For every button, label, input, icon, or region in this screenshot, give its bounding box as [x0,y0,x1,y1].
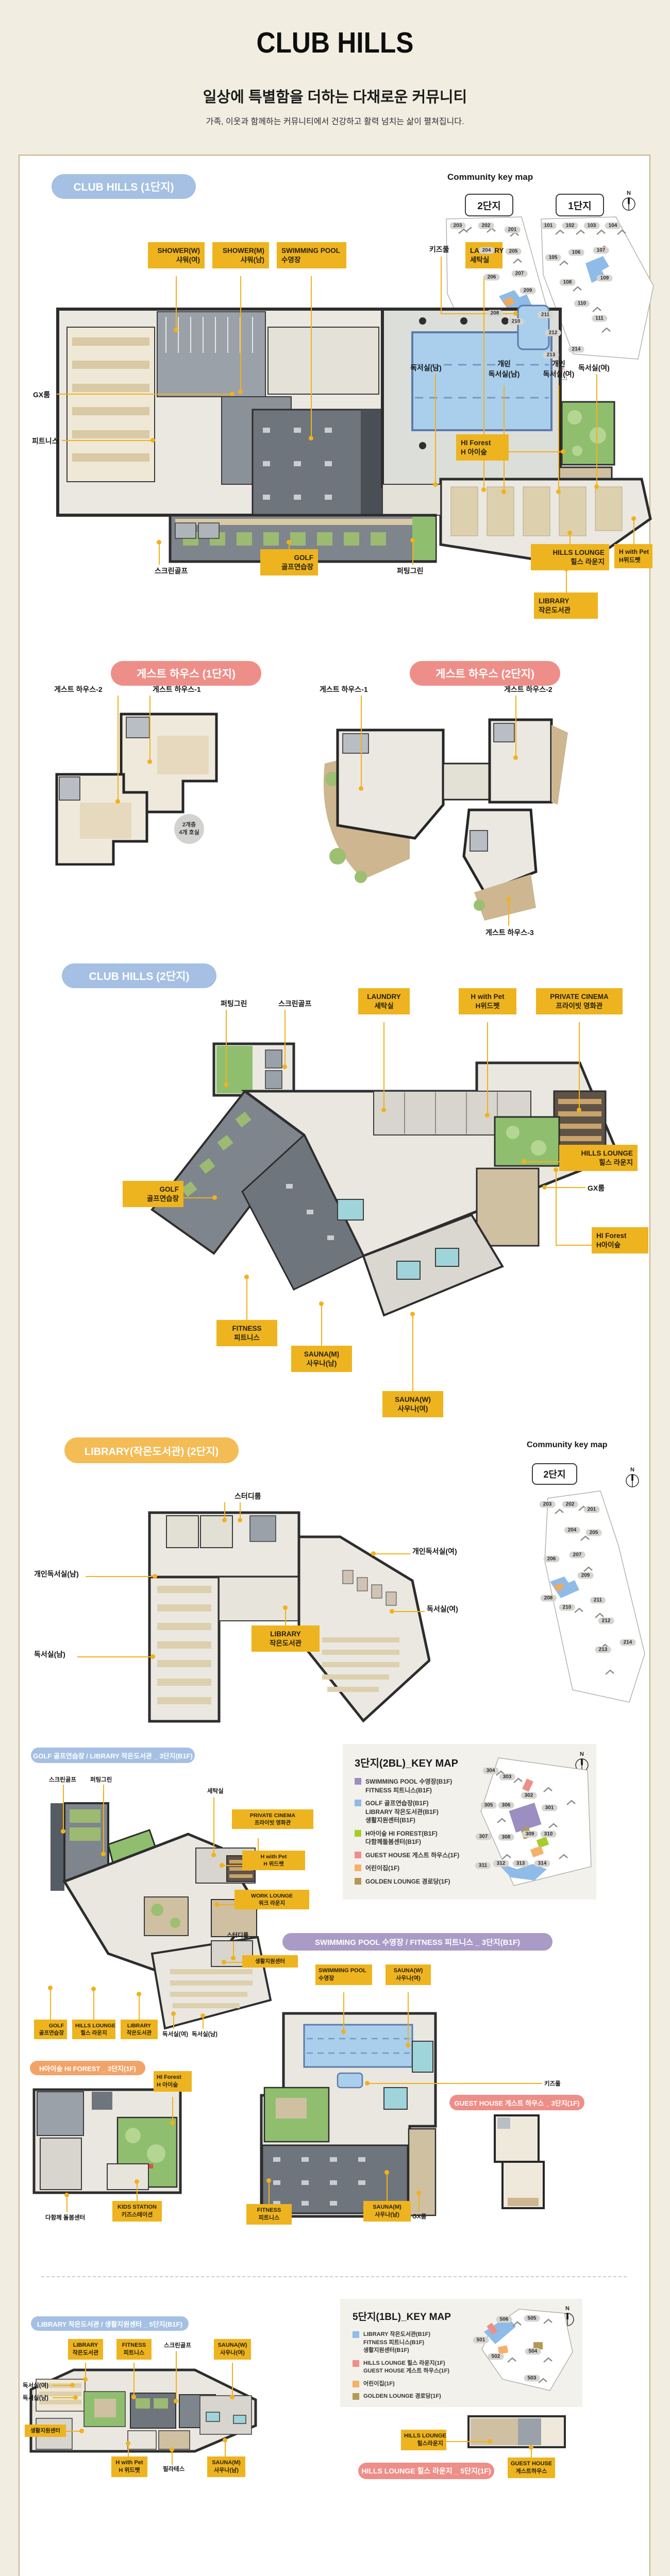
label-reading-m5: 독서실(남) [23,2394,48,2402]
leader-dot [410,538,415,543]
label-private-reading-w2: 개인독서실(여) [412,1546,457,1556]
building-pill-313: 313 [513,1860,529,1867]
label-h-with-pet5: H with PetH 위드펫 [111,2456,147,2477]
guest-note-circle: 2개층4개 호실 [174,814,204,844]
leader-line [222,1865,242,1866]
label-sauna-m3: SAUNA(M)사우나(남) [363,2201,411,2222]
label-study-room: 스터디룸 [234,1491,261,1501]
guest-house-plan-3danji [487,2111,549,2212]
building-pill-314: 314 [534,1860,550,1867]
leader-line [149,696,150,761]
leader-dot [371,1551,376,1556]
label-hi-forest: HI ForestH 아이숲 [456,434,509,461]
leader-line [240,1502,241,1520]
leader-line [412,1314,413,1391]
leader-dot [542,1185,547,1190]
leader-dot [238,389,243,394]
building-pill-207: 207 [512,270,528,277]
building-pill-505: 505 [524,2315,540,2322]
floor-plan-library2 [121,1509,430,1725]
leader-dot [359,786,363,791]
leader-dot [384,2170,389,2175]
keymap5-title: 5단지(1BL)_KEY MAP [353,2309,451,2323]
leader-dot [406,2043,410,2047]
leader-dot [153,1574,157,1579]
leader-line [93,1989,94,2020]
leader-line [633,518,634,544]
leader-dot [266,2178,271,2183]
leader-dot [222,1960,226,1964]
legend-chip [353,2331,359,2338]
leader-line [524,1161,559,1162]
label-guest2-2: 게스트 하우스-2 [504,684,552,694]
leader-line [321,1303,322,1346]
leader-line [172,2097,173,2123]
building-pill-101: 101 [541,223,557,229]
label-library3: LIBRARY작은도서관 [121,2020,158,2039]
building-pill-205: 205 [586,1530,602,1536]
building-pill-108: 108 [560,279,576,286]
section5-badge: GOLF 골프연습장 / LIBRARY 작은도서관 _ 3단지(B1F) [31,1748,195,1763]
building-pill-212: 212 [545,330,561,336]
label-golf3: GOLF골프연습장 [34,2020,67,2039]
leader-line [408,1992,409,2045]
leader-line [504,385,505,492]
section6-badge: SWIMMING POOL 수영장 / FITNESS 피트니스 _ 3단지(B… [282,1933,552,1951]
label-fitness2: FITNESS피트니스 [216,1320,277,1346]
label-library: LIBRARY작은도서관 [534,592,598,619]
legend-chip [355,1778,361,1785]
leader-dot [522,1159,526,1164]
leader-line [63,1785,64,1831]
building-pill-210: 210 [508,318,524,325]
label-library2: LIBRARY작은도서관 [252,1625,320,1652]
legend-chip [355,1865,361,1871]
leader-line [441,313,515,314]
label-guest2-3: 게스트 하우스-3 [485,927,534,938]
leader-line [392,1611,425,1612]
leader-dot [212,1195,217,1200]
keymap2-title: Community key map [527,1440,607,1450]
building-pill-106: 106 [568,249,584,256]
building-pill-213: 213 [595,1647,611,1653]
leader-line [509,451,563,452]
label-golf: GOLF골프연습장 [260,549,318,575]
legend-chip [353,2381,359,2387]
building-pill-502: 502 [488,2353,504,2360]
label-work-lounge: WORK LOUNGE워크 라운지 [234,1890,309,1909]
label-pilates5: 필라테스 [163,2465,185,2473]
building-pill-304: 304 [483,1768,499,1774]
keymap1-title: Community key map [447,172,533,182]
leader-line [224,1962,242,1963]
label-screen-golf3: 스크린골프 [49,1775,76,1784]
building-pill-504: 504 [525,2348,541,2355]
page-description: 가족, 이웃과 함께하는 커뮤니티에서 건강하고 활력 넘치는 삶이 펼쳐집니다… [0,114,670,127]
label-study3: 스터디룸 [227,1931,248,1939]
building-pill-110: 110 [574,300,590,307]
building-pill-305: 305 [481,1802,497,1809]
leader-dot [70,2383,75,2387]
leader-line [418,2193,420,2211]
building-pill-201: 201 [505,227,521,233]
building-pill-204: 204 [564,1527,580,1534]
leader-dot [513,311,518,316]
leader-dot [506,897,511,902]
building-pill-109: 109 [597,275,613,282]
leader-line [285,1607,286,1625]
building-pill-208: 208 [541,1595,557,1602]
leader-line [441,257,442,313]
floor-plan-hiforest3 [30,2087,185,2196]
leader-dot [410,1312,415,1316]
label-sauna-w5: SAUNA(W)사우나(여) [214,2339,251,2360]
building-pill-303: 303 [499,1774,515,1781]
leader-line [224,1502,225,1520]
leader-line [269,2180,270,2204]
label-kids-pool: 키즈풀 [429,244,449,255]
label-hiforest3: HI ForestH 아이숲 [154,2071,192,2092]
label-support3: 생활지원센터 [242,1955,298,1968]
building-pill-506: 506 [496,2316,512,2323]
leader-line [53,2385,72,2386]
building-pill-208: 208 [487,310,503,317]
building-pill-205: 205 [506,248,522,255]
leader-dot [529,2445,533,2450]
leader-dot [341,2029,346,2034]
label-golf2: GOLF골프연습장 [123,1181,183,1207]
leader-dot [501,489,506,494]
building-pill-211: 211 [590,1597,606,1604]
svg-text:N: N [630,1467,634,1473]
building-pill-206: 206 [544,1556,560,1563]
leader-dot [594,484,599,489]
leader-dot [214,1902,219,1907]
legend-chip [355,1830,361,1837]
leader-dot [556,489,561,494]
section2-badge-1danji: 게스트 하우스 (1단지) [111,661,261,686]
label-swimming-pool: SWIMMING POOL수영장 [277,242,346,268]
leader-line [159,542,160,565]
leader-dot [101,1852,106,1856]
label-reading-m3: 독서실(남) [192,2030,217,2038]
leader-line [118,696,119,801]
leader-line [246,1277,247,1320]
leader-dot [115,799,120,804]
label-sauna-w2: SAUNA(W)사우나(여) [382,1391,443,1417]
leader-dot [150,438,155,443]
leader-dot [481,487,486,492]
building-pill-102: 102 [562,223,578,229]
section8-badge: GUEST HOUSE 게스트 하우스 _ 3단지(1F) [449,2095,584,2110]
brochure-page: CLUB HILLS 일상에 특별함을 더하는 다채로운 커뮤니티 가족, 이웃… [0,0,670,2576]
leader-dot [79,2429,84,2433]
leader-line [596,374,597,486]
section9-badge: LIBRARY 작은도서관 / 생활지원센터 _ 5단지(B1F) [31,2316,189,2331]
leader-line [57,394,232,395]
leader-dot [126,2441,130,2446]
building-pill-201: 201 [584,1506,600,1513]
label-h-with-pet2: H with PetH위드펫 [459,988,516,1014]
leader-line [556,1170,557,1246]
leader-line [137,2181,138,2201]
leader-dot [157,540,161,545]
building-pill-308: 308 [498,1834,514,1841]
building-pill-210: 210 [559,1604,575,1611]
label-fitness5: FITNESS피트니스 [116,2339,152,2360]
label-sauna-m2: SAUNA(M)사우나(남) [291,1346,352,1372]
label-kids-pool3: 키즈풀 [544,2079,561,2088]
building-pill-104: 104 [605,223,621,229]
leader-dot [488,2439,492,2444]
floor-plan-hills-lounge5 [466,2414,567,2449]
label-hills3: HILLS LOUNGE힐스 라운지 [72,2020,115,2039]
leader-dot [91,1987,96,1991]
leader-dot [319,1301,324,1306]
label-private-reading-m: 개인독서실(남) [484,359,524,379]
label-guest-1: 게스트 하우스-1 [153,684,201,694]
section-divider [41,2276,627,2277]
label-putting-green2: 퍼팅그린 [221,998,247,1009]
building-pill-501: 501 [473,2337,489,2344]
leader-dot [631,516,636,521]
leader-dot [244,1275,249,1279]
label-screen-golf: 스크린골프 [155,566,188,576]
building-pill-302: 302 [521,1792,537,1799]
compass-icon: N [621,190,636,213]
leader-dot [64,2193,69,2197]
label-private-reading-w: 개인독서실(여) [539,359,578,379]
leader-line [139,1994,140,2020]
label-screen-golf5: 스크린골프 [164,2341,191,2349]
leader-dot [224,1082,228,1087]
building-pill-206: 206 [484,274,500,281]
leader-dot [238,1518,242,1522]
leader-dot [174,2399,178,2403]
keymap3-legend: SWIMMING POOL 수영장(B1F)FITNESS 피트니스(B1F) … [355,1777,473,1890]
leader-line [213,1797,214,1855]
leader-line [216,1904,234,1905]
floor-plan-complex1 [52,281,652,572]
label-hills-lounge: HILLS LOUNGE힐스 라운지 [531,544,609,570]
leader-dot [170,2121,175,2125]
leader-dot [567,531,572,535]
leader-line [176,2351,177,2401]
leader-dot [48,1986,53,1990]
section1-badge: CLUB HILLS (1단지) [52,174,196,199]
leader-dot [283,1605,288,1610]
label-gx3: GX룸 [412,2212,426,2221]
keymap1-badge-2danji: 2단지 [465,194,513,216]
label-reading-w5: 독서실(여) [23,2381,48,2389]
leader-dot [230,2395,234,2399]
leader-dot [282,1064,287,1069]
leader-line [311,276,312,438]
leader-line [53,2397,75,2398]
label-shower-m: SHOWER(M)샤워(남) [212,242,269,268]
leader-dot [61,1829,65,1834]
legend-chip [355,1800,361,1806]
label-guest-house5: GUEST HOUSE게스트하우스 [508,2458,555,2478]
leader-dot [381,1108,386,1112]
leader-line [558,385,559,492]
leader-dot [554,1167,558,1172]
guest-house-plan-1danji [49,705,227,866]
leader-dot [147,759,152,764]
building-pill-311: 311 [475,1862,491,1869]
label-reading-w: 독서실(여) [578,363,610,373]
section10-badge: HILLS LOUNGE 힐스 라운지 _ 5단지(1F) [358,2463,494,2479]
leader-dot [137,1992,141,1996]
building-pill-214: 214 [568,346,584,353]
leader-line [133,2363,135,2397]
leader-dot [171,2011,176,2016]
label-reading-m2: 독서실(남) [34,1649,65,1659]
label-private-reading-m2: 개인독서실(남) [34,1569,79,1579]
leader-dot [131,2395,136,2399]
leader-line [515,696,516,757]
label-gx-room2: GX룸 [588,1183,605,1193]
leader-dot [365,2081,370,2086]
building-pill-309: 309 [522,1831,538,1838]
leader-line [579,1022,580,1110]
leader-line [373,1553,410,1554]
leader-line [435,374,436,484]
leader-dot [577,1108,581,1112]
label-private-cinema: PRIVATE CINEMA프라이빗 영화관 [536,988,623,1014]
keymap2-badge: 2단지 [532,1463,577,1485]
building-pill-202: 202 [562,1501,578,1508]
building-pill-310: 310 [541,1831,557,1838]
label-hills-lounge2: HILLS LOUNGE힐스 라운지 [559,1145,638,1171]
label-hills-lounge5: HILLS LOUNGE힐스라운지 [401,2430,446,2450]
building-pill-204: 204 [479,247,495,254]
leader-line [183,1197,214,1198]
section3-badge: CLUB HILLS (2단지) [62,963,216,988]
keymap5-legend: LIBRARY 작은도서관(B1F)FITNESS 피트니스(B1F)생활지원센… [353,2331,463,2405]
leader-line [556,1245,592,1246]
keymap1-badge-1danji: 1단지 [556,194,604,216]
leader-line [387,2172,388,2201]
building-pill-503: 503 [524,2375,540,2382]
leader-line [232,2363,233,2397]
label-library5: LIBRARY작은도서관 [68,2339,103,2360]
leader-dot [561,449,565,454]
label-laundry: LAUNDRY세탁실 [465,242,502,268]
building-pill-307: 307 [476,1834,492,1840]
building-pill-213: 213 [543,352,559,359]
leader-line [383,1022,384,1110]
legend-chip [355,1852,361,1858]
label-guest2-1: 게스트 하우스-1 [320,684,368,694]
leader-line [508,899,509,926]
leader-dot [211,1853,216,1857]
label-support5: 생활지원센터 [25,2425,66,2437]
leader-dot [230,392,234,396]
leader-dot [309,436,313,440]
label-guest-2: 게스트 하우스-2 [54,684,103,694]
leader-dot [222,1518,227,1522]
building-pill-103: 103 [584,223,600,229]
floor-plan-complex2 [116,1040,616,1349]
label-shower-w: SHOWER(W)샤워(여) [148,242,205,268]
building-pill-212: 212 [598,1618,614,1624]
leader-line [367,2083,542,2084]
leader-dot [564,567,568,571]
svg-text:N: N [627,190,631,196]
label-laundry3: 세탁실 [207,1787,224,1795]
building-pill-214: 214 [620,1639,636,1646]
building-pill-209: 209 [578,1572,594,1579]
label-fitness: 피트니스 [32,436,59,446]
leader-dot [170,2447,174,2452]
leader-line [176,276,177,330]
keymap3-title: 3단지(2BL)_KEY MAP [355,1755,458,1770]
leader-dot [231,1956,236,1960]
legend-chip [353,2360,359,2367]
legend-chip [355,1878,361,1885]
label-reading-w3: 독서실(여) [162,2030,188,2038]
leader-line [50,1988,51,2020]
leader-line [412,540,413,565]
leader-line [284,1010,286,1066]
label-sauna-m5: SAUNA(M)사우나(남) [207,2456,245,2477]
leader-line [66,2195,68,2212]
label-hi-forest2: HI ForestH아이숲 [592,1227,648,1253]
building-pill-207: 207 [569,1552,585,1558]
leader-dot [416,2191,421,2195]
label-reading-w2: 독서실(여) [427,1604,458,1614]
label-pool3: SWIMMING POOL수영장 [315,1964,372,1985]
leader-dot [83,2377,88,2382]
page-subtitle: 일상에 특별함을 더하는 다채로운 커뮤니티 [0,85,670,107]
leader-dot [485,1113,490,1117]
section2-badge-2danji: 게스트 하우스 (2단지) [410,661,560,686]
leader-line [487,1022,488,1115]
leader-line [343,1992,344,2031]
label-laundry2: LAUNDRY세탁실 [358,988,410,1014]
leader-dot [73,2395,78,2400]
label-kids-station: KIDS STATION키즈스테이션 [112,2201,162,2222]
page-title: CLUB HILLS [33,26,636,60]
label-gx-room: GX룸 [33,389,50,400]
leader-dot [287,540,291,545]
building-pill-105: 105 [545,255,561,261]
building-pill-202: 202 [478,223,494,229]
guest-house-plan-2danji [314,702,569,926]
label-care-center: 다함께 돌봄센터 [45,2213,85,2222]
label-cinema3: PRIVATE CINEMA프라이빗 영화관 [232,1809,313,1829]
leader-dot [150,1654,155,1659]
section7-badge: H아이숲 HI FOREST _ 3단지(1F) [30,2061,145,2075]
leader-line [86,1576,155,1577]
leader-dot [223,2438,227,2443]
label-putting3: 퍼팅그린 [90,1775,112,1784]
leader-line [446,2441,490,2442]
building-pill-211: 211 [538,312,553,318]
leader-line [566,569,567,592]
building-pill-111: 111 [592,315,607,322]
label-h-with-pet3: H with PetH 위드펫 [242,1851,305,1870]
leader-dot [135,2179,139,2184]
label-putting-green: 퍼팅그린 [397,566,424,576]
leader-dot [174,328,178,332]
leader-line [240,276,241,392]
leader-line [103,1785,104,1854]
leader-dot [200,2013,205,2018]
building-pill-107: 107 [593,247,609,254]
building-pill-203: 203 [540,1501,556,1508]
